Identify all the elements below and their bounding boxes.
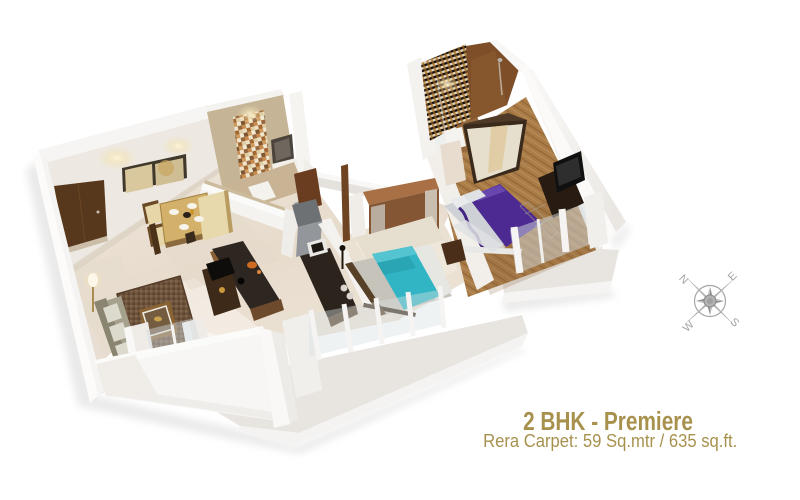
svg-text:Rera Carpet: 59 Sq.mtr / 635 s: Rera Carpet: 59 Sq.mtr / 635 sq.ft.: [483, 430, 737, 451]
svg-text:E: E: [726, 270, 740, 284]
svg-text:N: N: [676, 273, 690, 287]
svg-text:S: S: [727, 316, 741, 330]
svg-text:W: W: [681, 318, 697, 334]
